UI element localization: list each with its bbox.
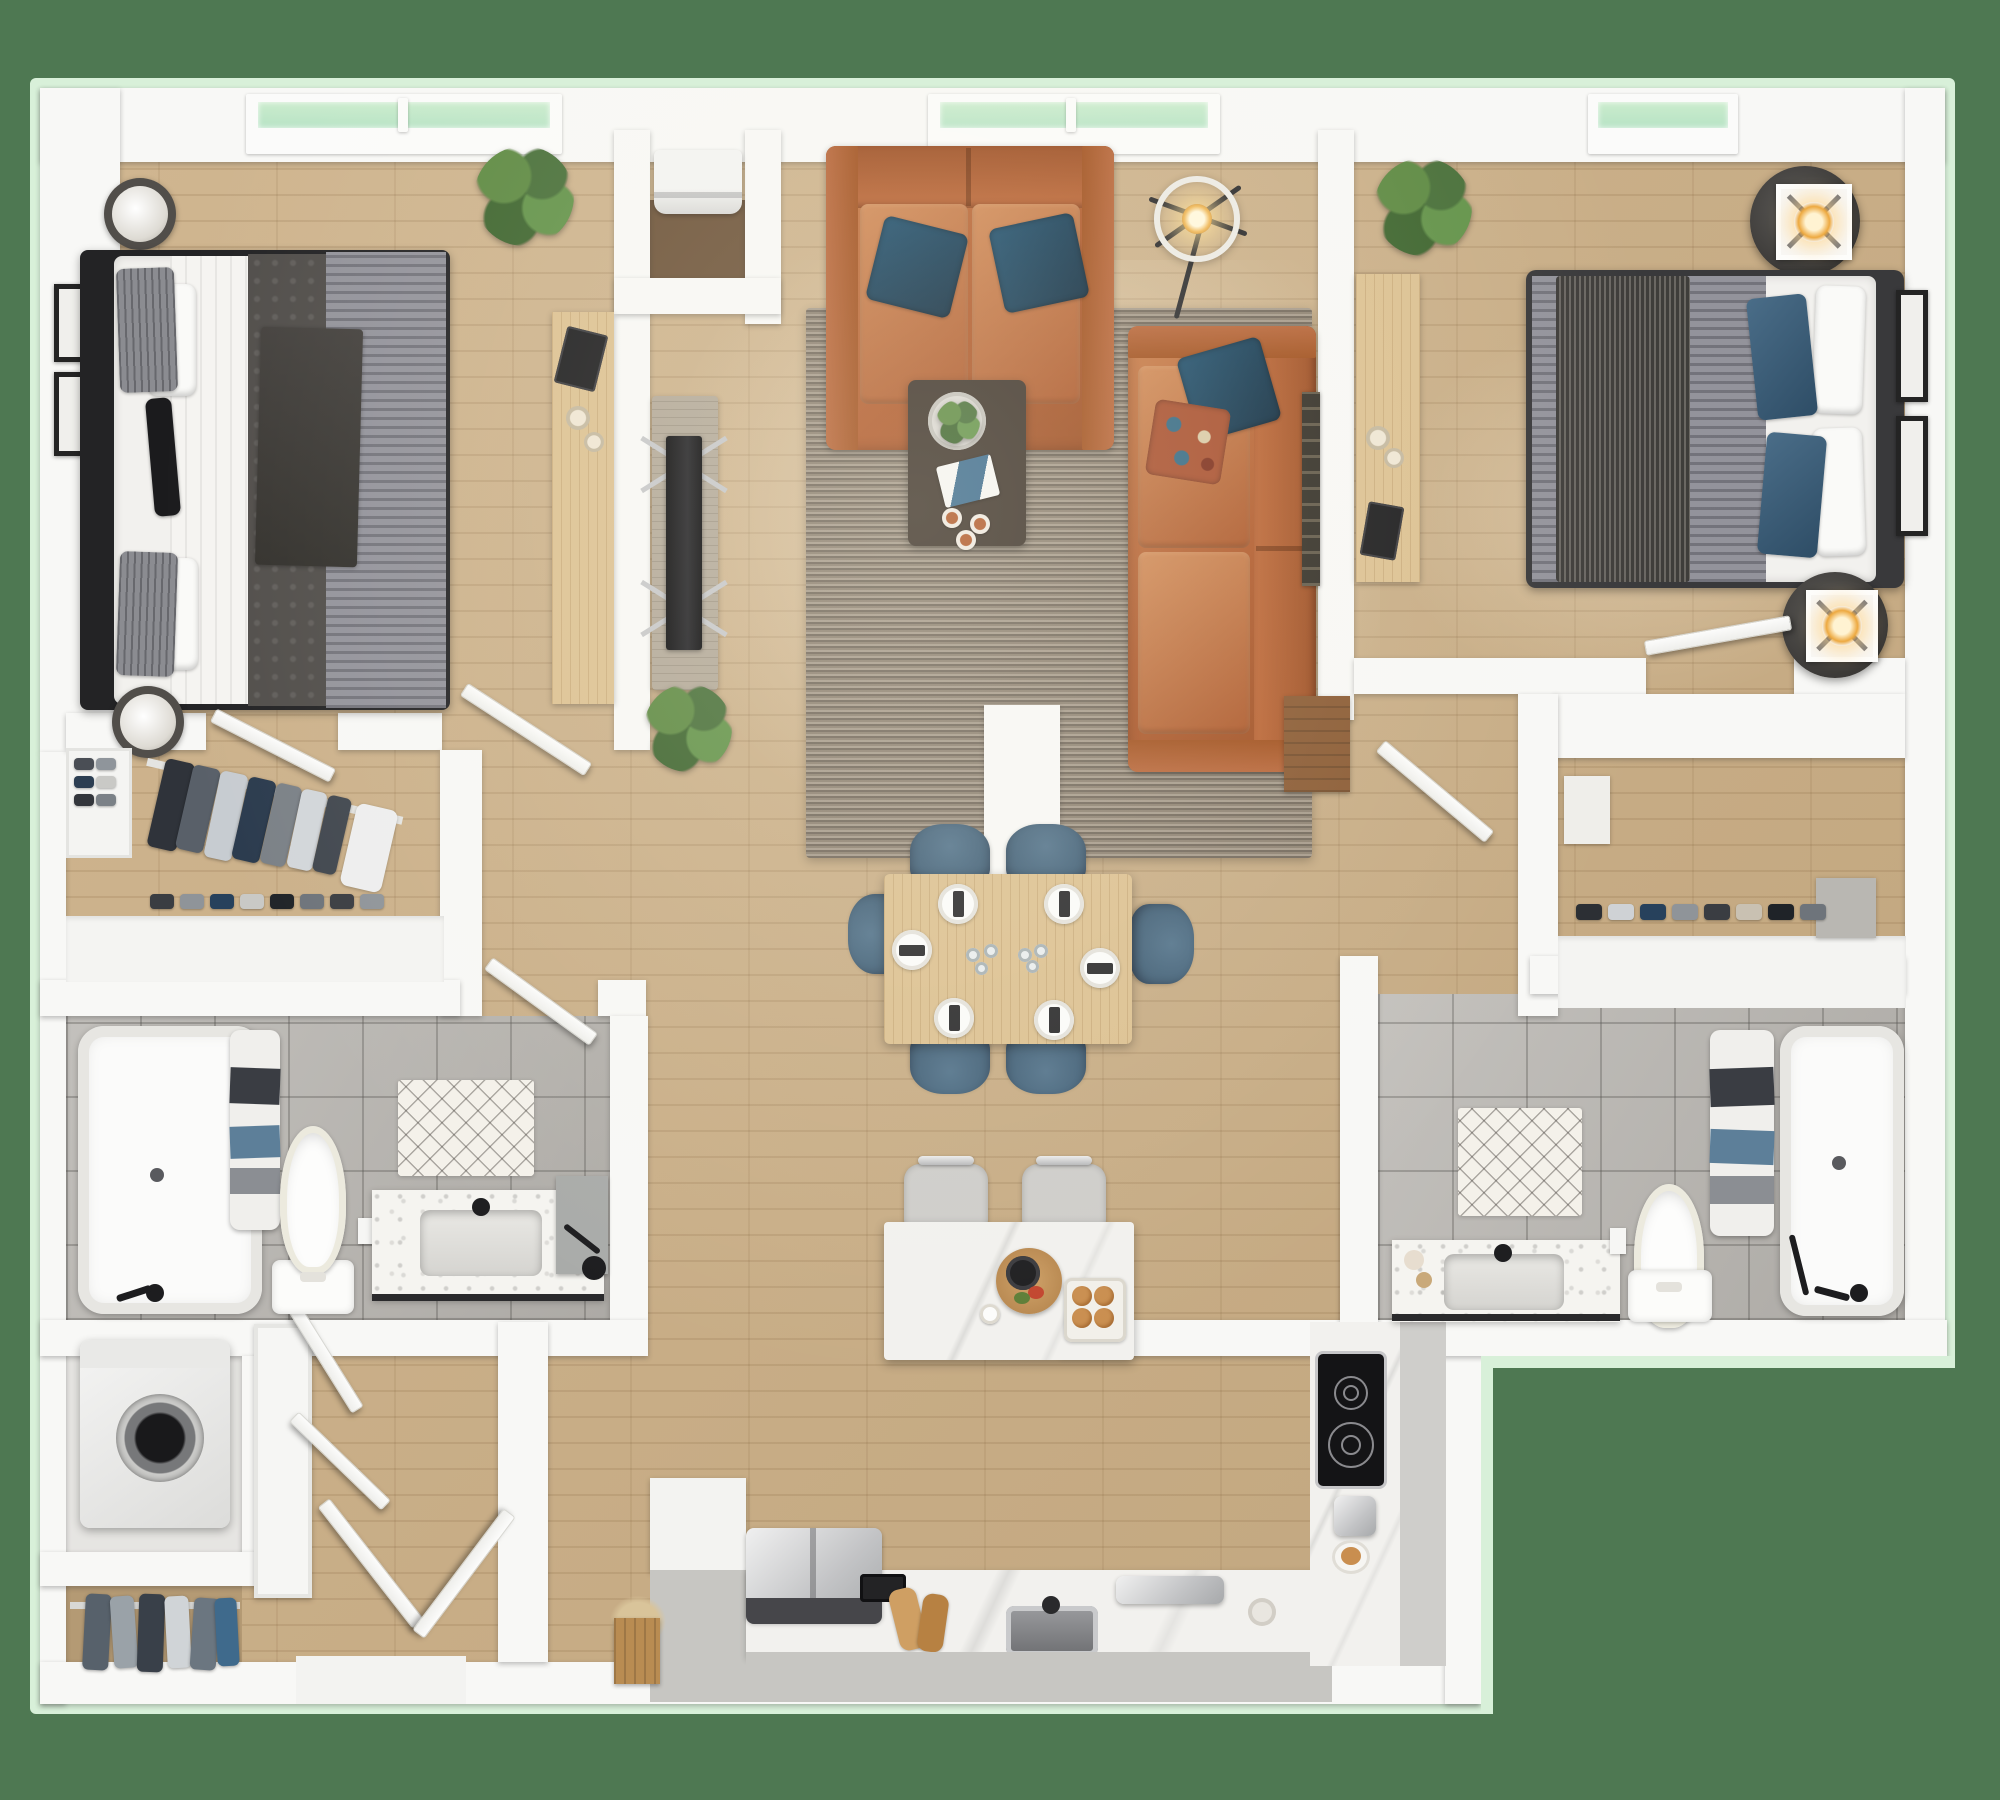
kitchen-cabinets-bottom [746,1652,1332,1702]
bedroom1-pillow-stripe-1 [116,267,178,393]
cut-corner-green [1493,1368,2000,1800]
wall-bathroom2-bottom [1060,1320,1947,1356]
coffee-machine-front [746,1598,882,1624]
bathroom1-tub-drain [150,1168,164,1182]
bedroom1-candle-2 [584,432,604,452]
bathroom1-toilet-bowl [280,1126,346,1274]
entry-clothes-2 [110,1595,139,1668]
bedroom1-window-mullion [398,98,408,132]
island-bread-tray [1064,1278,1126,1342]
closet2-shoe-8 [1800,904,1826,920]
bathroom2-towel-gray [1710,1176,1774,1204]
counter-bowl [1248,1598,1276,1626]
kitchen-column-upper [650,1478,746,1572]
bathroom2-towel-blue [1709,1129,1774,1165]
bedroom2-wall-art-1 [1896,290,1928,402]
closet1-floor-shoe-4 [240,894,264,909]
closet2-shoe-5 [1704,904,1730,920]
cooktop-burner-large-inner [1341,1435,1361,1455]
dining-napkin-1 [953,891,964,917]
dining-napkin-4 [1087,963,1113,974]
wall-niche-sill [614,278,781,314]
dining-glass-5 [975,962,988,975]
closet1-shelf-shoe-2 [96,758,116,770]
bathroom1-mat [398,1080,534,1176]
bedroom2-plant [1374,158,1472,256]
coffee-table-cup-3 [956,530,976,550]
sofa-loveseat-arm-left [826,146,858,450]
closet2-shoe-2 [1608,904,1634,920]
closet1-ledge [66,916,444,982]
bedroom1-lamp-bottom [120,694,176,750]
wall-bathroom1-top-a [40,980,460,1016]
closet2-shoe-3 [1640,904,1666,920]
dining-napkin-2 [1059,891,1070,917]
niche-water-heater [654,150,742,214]
dining-napkin-5 [949,1005,960,1031]
bathroom2-vanity-faucet [1494,1244,1512,1262]
sofa-loveseat-arm-right [1082,146,1114,450]
bathroom2-vanity-jar [1416,1272,1432,1288]
toaster [1334,1496,1376,1536]
coffee-table-cup-2 [970,514,990,534]
wall-bathroom2-left [1340,956,1378,1356]
bathroom1-towel-dark [229,1067,280,1105]
cut-corner-mint-top [1481,1356,1955,1368]
bedroom2-candle-1 [1366,426,1390,450]
closet1-shelf-shoe-6 [96,794,116,806]
closet1-shelf-shoe-4 [96,776,116,788]
dining-napkin-3 [899,945,925,956]
coffee-table-cup-1 [942,508,962,528]
sofa-loveseat-pillow-2 [988,212,1090,314]
bathroom2-toilet-button [1656,1282,1682,1292]
sofa-vertical-pillow-pattern [1145,399,1232,486]
dining-glass-1 [966,948,980,962]
bathroom2-towel-dark [1709,1067,1774,1107]
bedroom2-wall-art-2 [1896,416,1928,536]
kitchen-sink-faucet [1042,1596,1060,1614]
island-pan [1006,1256,1040,1290]
wall-entry-right [498,1322,548,1662]
hallway-cabinet [1284,696,1350,792]
wall-right [1905,88,1945,1358]
closet1-floor-shoe-5 [270,894,294,909]
closet1-floor-shoe-8 [360,894,384,909]
island-greens [1014,1292,1030,1304]
bedroom2-pillow-blue-1 [1746,293,1818,421]
bathroom2-tub-faucet [1850,1284,1868,1302]
wall-closet1-right [440,750,482,1016]
bedroom2-throw [1556,276,1690,582]
wall-slat-shelf [1302,392,1320,586]
bathroom1-vanity-faucet [472,1198,490,1216]
wall-living-right [1318,130,1354,720]
counter-tray [1116,1576,1224,1604]
bathroom1-vanity-edge [372,1294,604,1301]
wall-laundry-divider [40,1552,278,1586]
living-window-mullion [1066,98,1076,132]
kitchen-cabinets-right [1400,1322,1446,1666]
island-roll-2 [1094,1286,1114,1306]
tv-screen [666,436,702,650]
sofa-vertical-cushion-2 [1138,552,1250,734]
tv-plant [644,684,732,772]
dining-glass-6 [1026,960,1039,973]
decor-crate [614,1618,660,1684]
closet1-shelf-shoe-5 [74,794,94,806]
entry-clothes-6 [214,1597,240,1666]
sofa-loveseat-seam [966,148,971,206]
bathroom2-vanity-basin [1444,1254,1564,1310]
closet1-floor-shoe-2 [180,894,204,909]
bedroom1-throw [255,327,363,568]
bedroom1-candle-1 [566,406,590,430]
cut-corner-mint-left [1481,1356,1493,1714]
dining-napkin-6 [1049,1007,1060,1033]
bathroom1-towel-gray [230,1168,280,1194]
bedroom2-lamp-top-glow [1794,202,1834,242]
island-tomato [1028,1286,1044,1299]
entry-cabinet [254,1324,312,1598]
closet2-shoe-7 [1768,904,1794,920]
closet1-floor-shoe-6 [300,894,324,909]
wall-bathroom1-top-b [598,980,646,1016]
bathroom2-tp-holder [1610,1228,1626,1254]
island-roll-3 [1072,1308,1092,1328]
bedroom1-pillow-stripe-2 [116,551,178,677]
bathroom2-vanity-edge [1392,1314,1620,1321]
bathroom2-tub-drain [1832,1156,1846,1170]
niche-water-heater-line [654,192,742,198]
closet1-shelf-shoe-3 [74,776,94,788]
island-stool-1-rail [918,1156,974,1165]
cooktop-burner-small-inner [1343,1385,1359,1401]
closet1-floor-shoe-3 [210,894,234,909]
bedroom1-plant [474,146,574,246]
closet2-box [1564,776,1610,844]
bathroom1-toilet-button [300,1272,326,1282]
bathroom2-toilet-tank [1628,1270,1712,1322]
island-roll-4 [1094,1308,1114,1328]
bedroom2-pillow-white-1 [1812,285,1866,415]
island-roll-1 [1072,1286,1092,1306]
washer-door [116,1394,204,1482]
closet2-shoe-6 [1736,904,1762,920]
dining-glass-4 [1034,944,1048,958]
washer-top-panel [80,1340,230,1368]
floor-lamp-bulb [1182,204,1212,234]
front-door-threshold [296,1656,466,1704]
bedroom2-lamp-bottom-glow [1822,606,1862,646]
closet1-shelf-shoe-1 [74,758,94,770]
entry-clothes-1 [82,1593,112,1670]
wall-closet2-top [1554,694,1905,758]
bedroom1-lamp-top [112,186,168,242]
closet2-shoe-4 [1672,904,1698,920]
dining-glass-2 [984,944,998,958]
wall-kitchen-right [1445,1318,1481,1704]
dining-chair-right [1130,904,1194,984]
closet2-ledge [1558,936,1906,1008]
closet1-floor-shoe-7 [330,894,354,909]
wall-bathroom1-right [610,1016,648,1320]
wall-bedroom2-bottom-a [1354,658,1646,694]
bedroom2-pillow-blue-2 [1757,432,1827,559]
wall-bedroom1-bottom-b [338,713,442,750]
bathroom1-towel-blue [229,1125,280,1159]
bathroom1-shower-head [582,1256,606,1280]
apartment-floor-plan [0,0,2000,1800]
bedroom2-window-glass [1598,102,1728,128]
bathroom2-mat [1458,1108,1582,1216]
coffee-table-plant [936,400,980,444]
closet1-floor-shoe-1 [150,894,174,909]
island-cup [980,1304,1000,1324]
closet2-shoe-1 [1576,904,1602,920]
bathroom1-vanity-basin [420,1210,542,1276]
entry-clothes-3 [137,1594,166,1673]
bathroom2-vanity-soap [1404,1250,1424,1270]
bread [1341,1547,1361,1565]
entry-clothes-4 [164,1595,192,1668]
bedroom2-candle-2 [1384,448,1404,468]
island-stool-2-rail [1036,1156,1092,1165]
